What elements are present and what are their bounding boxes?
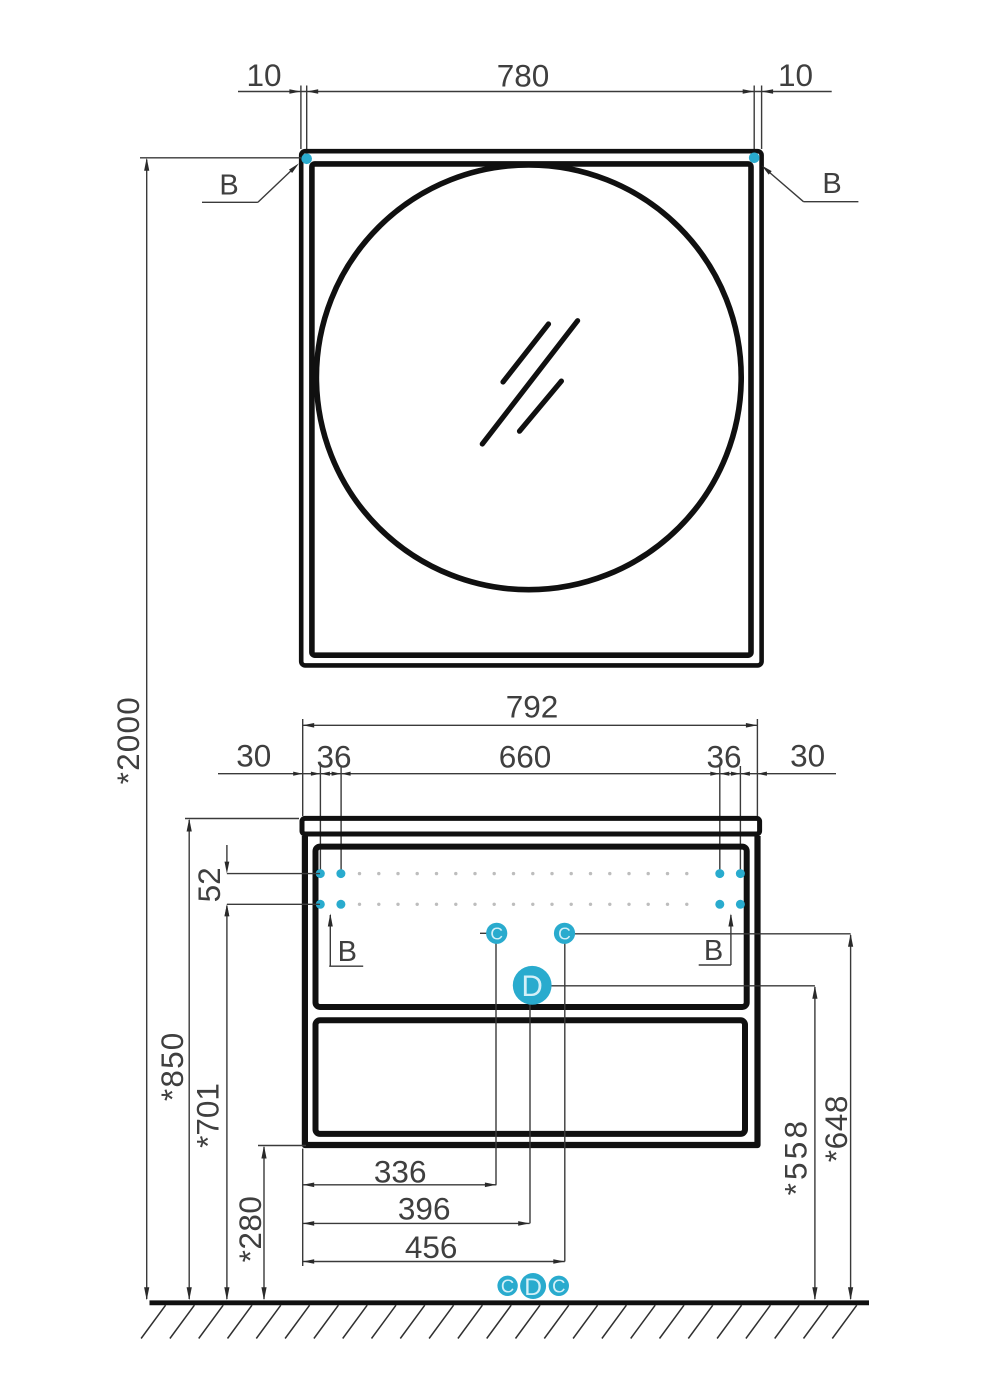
- svg-text:*280: *280: [232, 1196, 268, 1263]
- svg-text:10: 10: [778, 57, 813, 93]
- svg-text:*648: *648: [818, 1095, 854, 1162]
- svg-text:B: B: [704, 935, 723, 967]
- svg-text:*558: *558: [778, 1118, 814, 1196]
- svg-text:792: 792: [506, 689, 559, 725]
- svg-text:B: B: [338, 936, 357, 968]
- svg-text:780: 780: [497, 58, 550, 94]
- svg-text:52: 52: [191, 867, 227, 902]
- svg-text:456: 456: [405, 1229, 458, 1265]
- svg-text:30: 30: [790, 738, 825, 774]
- svg-text:C: C: [552, 1276, 565, 1297]
- svg-text:*2000: *2000: [110, 696, 146, 784]
- svg-text:396: 396: [398, 1191, 451, 1227]
- svg-text:C: C: [501, 1276, 514, 1297]
- svg-text:D: D: [524, 1274, 542, 1301]
- svg-text:36: 36: [316, 738, 351, 774]
- svg-text:C: C: [558, 924, 571, 944]
- svg-text:*850: *850: [154, 1031, 190, 1101]
- svg-text:30: 30: [236, 738, 271, 774]
- svg-text:C: C: [490, 924, 503, 944]
- svg-text:10: 10: [246, 57, 281, 93]
- svg-text:36: 36: [706, 738, 741, 774]
- svg-text:336: 336: [374, 1153, 427, 1189]
- svg-text:B: B: [219, 170, 238, 202]
- svg-text:*701: *701: [190, 1083, 226, 1148]
- svg-text:660: 660: [499, 738, 552, 774]
- svg-text:D: D: [522, 970, 543, 1003]
- svg-text:B: B: [822, 168, 841, 200]
